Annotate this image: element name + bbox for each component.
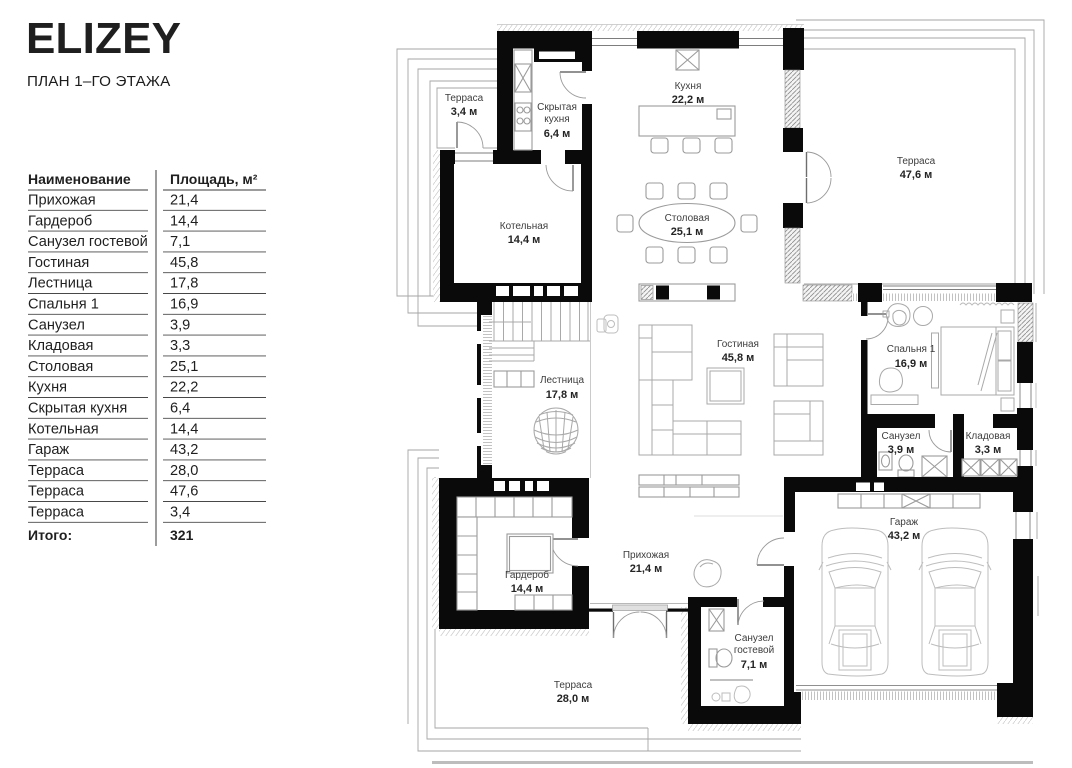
svg-text:7,1: 7,1 bbox=[170, 234, 190, 250]
svg-text:Терраса: Терраса bbox=[28, 505, 85, 521]
svg-text:Терраса: Терраса bbox=[28, 484, 85, 500]
svg-text:14,4: 14,4 bbox=[170, 421, 198, 437]
svg-text:Спальня 1: Спальня 1 bbox=[28, 297, 99, 313]
svg-text:Терраса: Терраса bbox=[445, 93, 484, 104]
svg-text:Котельная: Котельная bbox=[28, 421, 99, 437]
svg-text:47,6: 47,6 bbox=[170, 484, 198, 500]
svg-text:321: 321 bbox=[170, 527, 194, 543]
svg-text:Скрытая кухня: Скрытая кухня bbox=[28, 401, 127, 417]
svg-text:14,4 м: 14,4 м bbox=[508, 234, 541, 246]
svg-text:3,3 м: 3,3 м bbox=[975, 444, 1002, 456]
svg-text:Кладовая: Кладовая bbox=[28, 338, 93, 354]
svg-text:Гостиная: Гостиная bbox=[717, 339, 759, 350]
svg-text:43,2 м: 43,2 м bbox=[888, 530, 921, 542]
svg-text:14,4 м: 14,4 м bbox=[511, 583, 544, 595]
svg-text:Столовая: Столовая bbox=[665, 213, 710, 224]
svg-text:28,0 м: 28,0 м bbox=[557, 693, 590, 705]
svg-text:Гардероб: Гардероб bbox=[505, 569, 549, 581]
svg-text:21,4: 21,4 bbox=[170, 193, 198, 209]
svg-text:3,4: 3,4 bbox=[170, 505, 190, 521]
svg-text:Санузел гостевой: Санузел гостевой bbox=[28, 234, 148, 250]
svg-text:Гардероб: Гардероб bbox=[28, 213, 92, 229]
svg-text:Лестница: Лестница bbox=[28, 276, 93, 292]
svg-text:3,3: 3,3 bbox=[170, 338, 190, 354]
svg-text:17,8 м: 17,8 м bbox=[546, 389, 579, 401]
svg-text:16,9: 16,9 bbox=[170, 297, 198, 313]
svg-text:Скрытая: Скрытая bbox=[537, 102, 577, 113]
svg-text:Итого:: Итого: bbox=[28, 527, 72, 543]
svg-text:17,8: 17,8 bbox=[170, 276, 198, 292]
svg-text:Санузел: Санузел bbox=[882, 431, 921, 442]
svg-text:ПЛАН 1–ГО ЭТАЖА: ПЛАН 1–ГО ЭТАЖА bbox=[27, 73, 171, 90]
svg-text:Котельная: Котельная bbox=[500, 221, 548, 232]
svg-text:45,8: 45,8 bbox=[170, 255, 198, 271]
svg-text:Наименование: Наименование bbox=[28, 171, 131, 187]
svg-text:6,4: 6,4 bbox=[170, 401, 190, 417]
svg-text:Лестница: Лестница bbox=[540, 375, 585, 386]
svg-text:7,1 м: 7,1 м bbox=[741, 659, 768, 671]
svg-text:Гараж: Гараж bbox=[28, 442, 69, 458]
svg-text:Гостиная: Гостиная bbox=[28, 255, 89, 271]
svg-text:21,4 м: 21,4 м bbox=[630, 563, 663, 575]
svg-text:47,6 м: 47,6 м bbox=[900, 169, 933, 181]
svg-text:Кладовая: Кладовая bbox=[966, 431, 1011, 442]
svg-text:Терраса: Терраса bbox=[28, 463, 85, 479]
svg-text:22,2 м: 22,2 м bbox=[672, 94, 705, 106]
svg-text:3,9: 3,9 bbox=[170, 317, 190, 333]
svg-text:Спальня 1: Спальня 1 bbox=[887, 344, 936, 355]
svg-text:3,4 м: 3,4 м bbox=[451, 106, 478, 118]
svg-text:16,9 м: 16,9 м bbox=[895, 358, 928, 370]
svg-text:6,4 м: 6,4 м bbox=[544, 128, 571, 140]
svg-text:Санузел: Санузел bbox=[735, 633, 774, 644]
svg-text:3,9 м: 3,9 м bbox=[888, 444, 915, 456]
svg-text:гостевой: гостевой bbox=[734, 645, 774, 656]
svg-text:Кухня: Кухня bbox=[28, 380, 67, 396]
svg-text:14,4: 14,4 bbox=[170, 213, 198, 229]
svg-text:Площадь, м²: Площадь, м² bbox=[170, 171, 258, 187]
svg-text:22,2: 22,2 bbox=[170, 380, 198, 396]
svg-text:45,8 м: 45,8 м bbox=[722, 352, 755, 364]
svg-text:кухня: кухня bbox=[544, 114, 569, 125]
svg-text:Терраса: Терраса bbox=[897, 156, 936, 167]
svg-text:ELIZEY: ELIZEY bbox=[26, 14, 181, 63]
svg-text:43,2: 43,2 bbox=[170, 442, 198, 458]
svg-text:Кухня: Кухня bbox=[675, 81, 702, 92]
svg-text:Столовая: Столовая bbox=[28, 359, 93, 375]
svg-text:Терраса: Терраса bbox=[554, 680, 593, 691]
svg-text:25,1 м: 25,1 м bbox=[671, 226, 704, 238]
svg-text:Прихожая: Прихожая bbox=[623, 550, 669, 561]
svg-text:Гараж: Гараж bbox=[890, 517, 919, 528]
svg-text:25,1: 25,1 bbox=[170, 359, 198, 375]
svg-text:Санузел: Санузел bbox=[28, 317, 85, 333]
svg-text:28,0: 28,0 bbox=[170, 463, 198, 479]
svg-text:Прихожая: Прихожая bbox=[28, 193, 96, 209]
